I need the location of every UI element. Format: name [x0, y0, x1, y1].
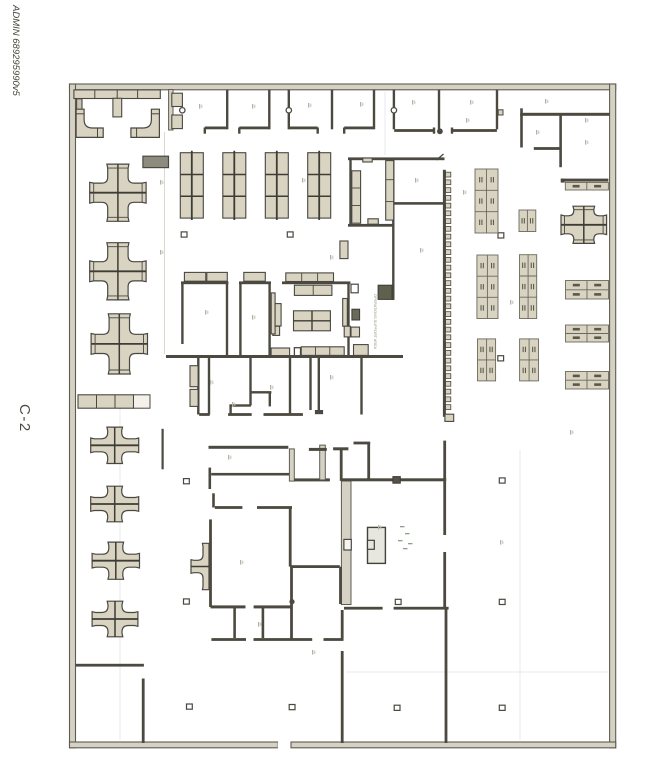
svg-text:ADMIN 689295990v5: ADMIN 689295990v5 [10, 4, 21, 97]
svg-text:OPERATIONS SUPPORT AREA: OPERATIONS SUPPORT AREA [373, 294, 377, 350]
svg-text:C-2: C-2 [16, 404, 33, 433]
